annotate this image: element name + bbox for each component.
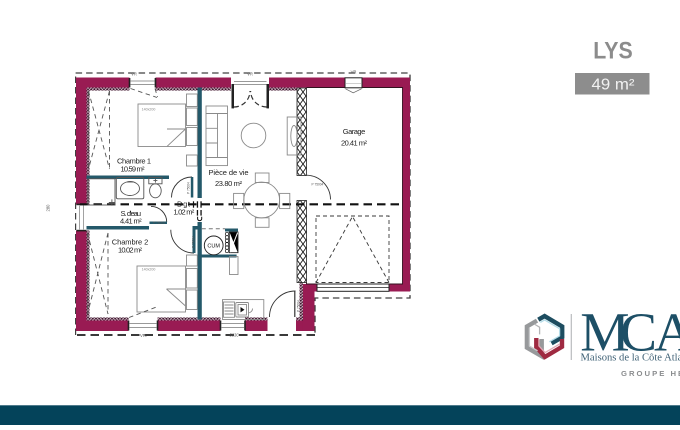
svg-text:Pièce de vie: Pièce de vie bbox=[209, 168, 249, 177]
svg-text:VR: VR bbox=[351, 70, 357, 75]
svg-text:10.59 m²: 10.59 m² bbox=[121, 165, 146, 174]
svg-text:5830: 5830 bbox=[229, 333, 239, 338]
svg-text:4.41 m²: 4.41 m² bbox=[120, 217, 142, 226]
svg-text:1.02 m²: 1.02 m² bbox=[173, 208, 194, 217]
svg-text:VR: VR bbox=[247, 72, 253, 77]
svg-text:23.80 m²: 23.80 m² bbox=[215, 179, 243, 188]
svg-text:280: 280 bbox=[46, 204, 51, 212]
svg-text:10.02 m²: 10.02 m² bbox=[118, 246, 143, 255]
svg-text:P 75004: P 75004 bbox=[187, 182, 191, 194]
svg-text:Garage: Garage bbox=[343, 127, 366, 136]
svg-text:140x200: 140x200 bbox=[142, 108, 156, 112]
svg-text:VR.: VR. bbox=[140, 333, 147, 338]
svg-text:CUM: CUM bbox=[207, 244, 220, 250]
svg-text:VR: VR bbox=[131, 72, 137, 77]
svg-text:LYS: LYS bbox=[593, 37, 633, 64]
svg-text:P 75004: P 75004 bbox=[312, 183, 324, 187]
svg-text:P 75004: P 75004 bbox=[192, 236, 196, 248]
svg-text:Maisons de la Côte Atlantiq: Maisons de la Côte Atlantiq bbox=[581, 353, 680, 364]
svg-text:140x200: 140x200 bbox=[142, 268, 156, 272]
svg-text:49 m²: 49 m² bbox=[592, 77, 635, 94]
svg-text:P 75004: P 75004 bbox=[297, 300, 301, 312]
svg-text:GROUPE HEXAG: GROUPE HEXAG bbox=[621, 369, 680, 378]
svg-text:20.41 m²: 20.41 m² bbox=[341, 138, 368, 147]
svg-text:P 75004: P 75004 bbox=[153, 221, 165, 225]
